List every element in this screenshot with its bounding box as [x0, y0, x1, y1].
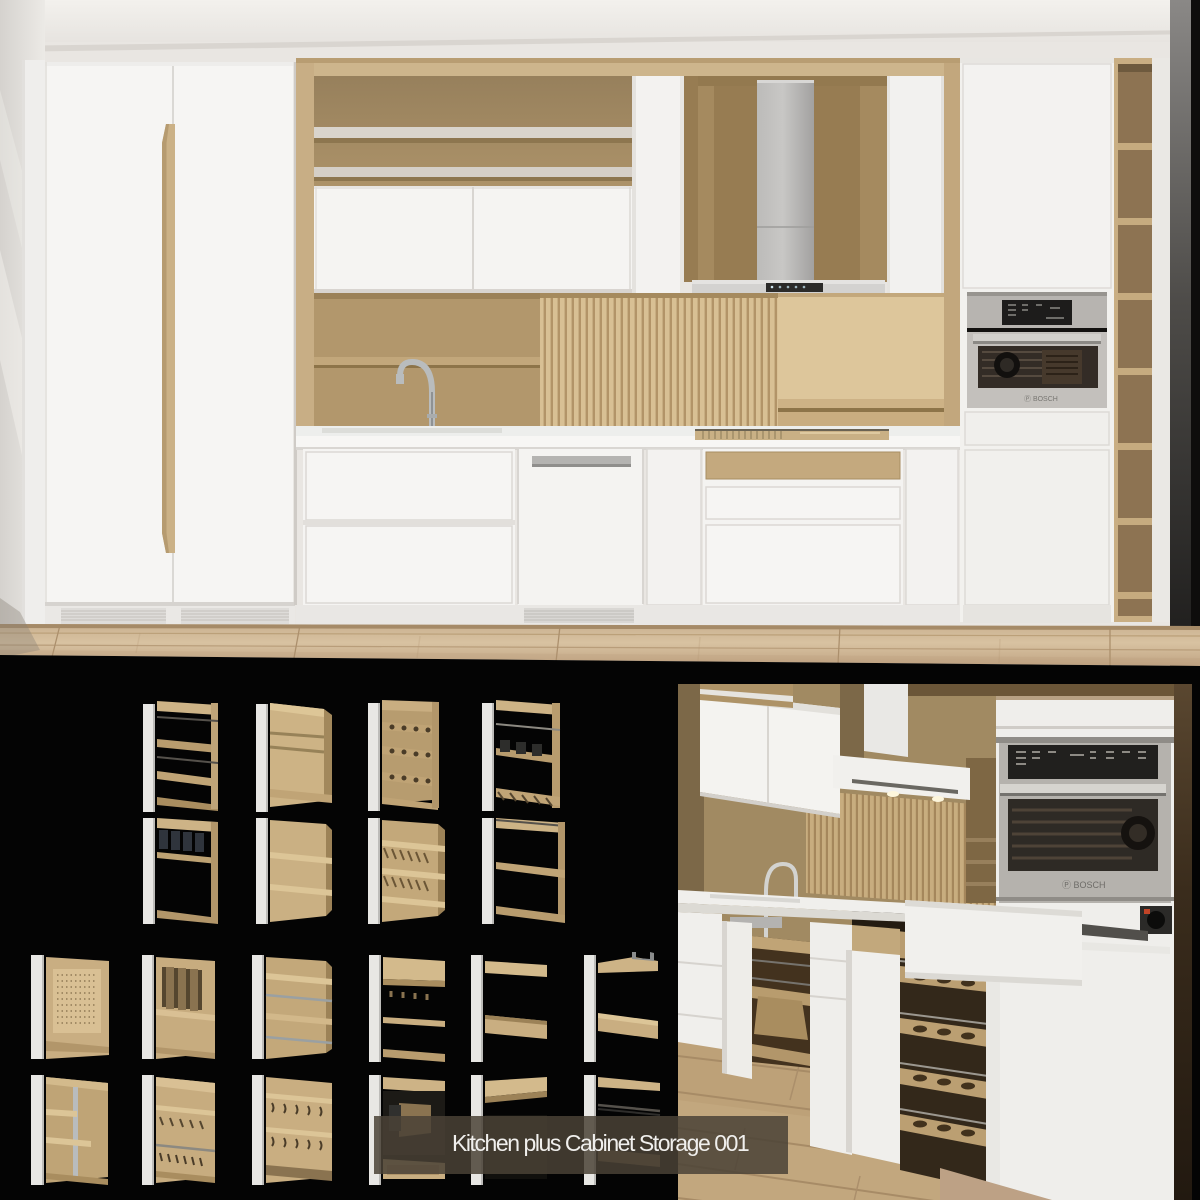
svg-text:Kitchen plus Cabinet Storage 0: Kitchen plus Cabinet Storage 001	[452, 1130, 749, 1156]
svg-text:Ⓟ BOSCH: Ⓟ BOSCH	[1062, 880, 1106, 890]
svg-text:Ⓟ BOSCH: Ⓟ BOSCH	[1024, 395, 1058, 403]
